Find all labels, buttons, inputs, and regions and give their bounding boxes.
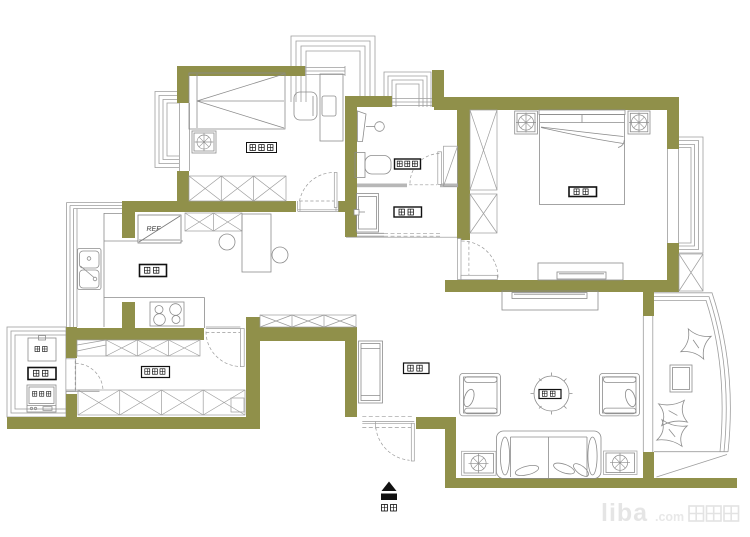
svg-text:REF: REF <box>147 226 162 233</box>
svg-text:liba: liba <box>601 499 648 527</box>
svg-text:.com: .com <box>655 510 684 524</box>
